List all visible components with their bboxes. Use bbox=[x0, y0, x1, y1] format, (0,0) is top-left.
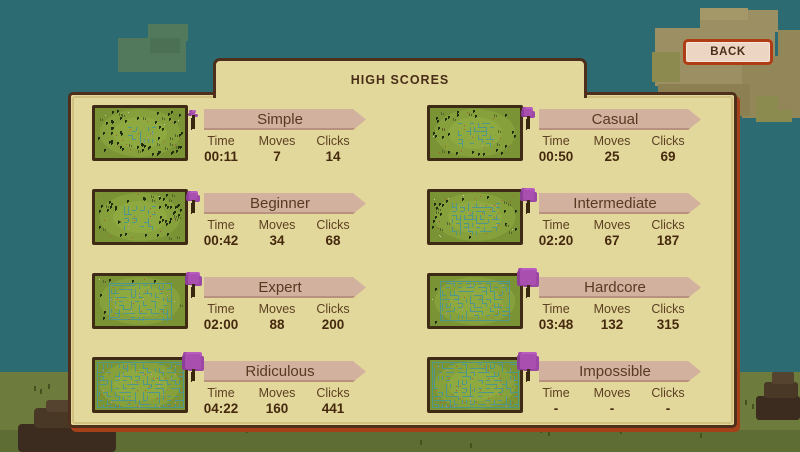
stat-value-time: - bbox=[554, 402, 559, 416]
stat-value-time: 02:00 bbox=[204, 318, 239, 332]
high-scores-screen: BACK Simple Time00:11 Moves7 Clicks14 bbox=[0, 0, 800, 452]
maze-thumbnail bbox=[427, 357, 523, 413]
difficulty-name: Impossible bbox=[579, 364, 661, 379]
maze-thumbnail bbox=[92, 189, 188, 245]
rock bbox=[756, 396, 800, 420]
stat-value-clicks: 441 bbox=[322, 402, 345, 416]
stat-value-moves: 34 bbox=[269, 234, 284, 248]
stat-header-time: Time bbox=[207, 134, 234, 148]
stat-value-moves: 25 bbox=[604, 150, 619, 164]
rock bbox=[18, 424, 116, 452]
cloud-tan bbox=[778, 30, 800, 110]
difficulty-name: Beginner bbox=[250, 196, 320, 211]
maze-thumbnail bbox=[92, 105, 188, 161]
difficulty-name: Intermediate bbox=[573, 196, 666, 211]
plant-icon bbox=[183, 354, 203, 381]
stats-row: Time02:20 Moves67 Clicks187 bbox=[533, 218, 691, 248]
grass-tufts bbox=[0, 0, 2, 5]
score-entry-simple: Simple Time00:11 Moves7 Clicks14 bbox=[92, 105, 427, 189]
stat-value-moves: 7 bbox=[273, 150, 281, 164]
stat-header-clicks: Clicks bbox=[316, 134, 349, 148]
stat-header-clicks: Clicks bbox=[651, 134, 684, 148]
stat-value-clicks: - bbox=[666, 402, 671, 416]
score-entry-expert: Expert Time02:00 Moves88 Clicks200 bbox=[92, 273, 427, 357]
stat-value-time: 04:22 bbox=[204, 402, 239, 416]
stat-value-clicks: 14 bbox=[325, 150, 340, 164]
score-entry-intermediate: Intermediate Time02:20 Moves67 Clicks187 bbox=[427, 189, 734, 273]
high-scores-panel: Simple Time00:11 Moves7 Clicks14 Casual … bbox=[68, 92, 737, 428]
cloud-tan bbox=[700, 8, 748, 20]
stat-header-clicks: Clicks bbox=[651, 302, 684, 316]
score-entry-impossible: Impossible Time- Moves- Clicks- bbox=[427, 357, 734, 428]
stat-header-moves: Moves bbox=[259, 134, 296, 148]
stat-value-clicks: 200 bbox=[322, 318, 345, 332]
high-scores-title-tab: HIGH SCORES bbox=[213, 58, 587, 98]
stat-header-moves: Moves bbox=[259, 218, 296, 232]
difficulty-banner: Impossible bbox=[539, 361, 701, 382]
page-title: HIGH SCORES bbox=[351, 73, 450, 87]
stats-row: Time00:42 Moves34 Clicks68 bbox=[198, 218, 356, 248]
plant-icon bbox=[183, 193, 203, 213]
stat-header-time: Time bbox=[542, 302, 569, 316]
plant-icon bbox=[518, 270, 538, 297]
stat-header-clicks: Clicks bbox=[316, 218, 349, 232]
stat-header-clicks: Clicks bbox=[316, 386, 349, 400]
stat-header-time: Time bbox=[207, 218, 234, 232]
stat-header-time: Time bbox=[207, 302, 234, 316]
difficulty-name: Expert bbox=[258, 280, 311, 295]
stat-value-time: 02:20 bbox=[539, 234, 574, 248]
stat-value-moves: 160 bbox=[266, 402, 289, 416]
maze-thumbnail bbox=[92, 357, 188, 413]
score-entry-beginner: Beginner Time00:42 Moves34 Clicks68 bbox=[92, 189, 427, 273]
difficulty-name: Hardcore bbox=[584, 280, 656, 295]
difficulty-banner: Simple bbox=[204, 109, 366, 130]
cloud-tan bbox=[652, 52, 680, 82]
score-entry-hardcore: Hardcore Time03:48 Moves132 Clicks315 bbox=[427, 273, 734, 357]
rock bbox=[772, 372, 794, 384]
difficulty-name: Casual bbox=[592, 112, 649, 127]
stat-header-time: Time bbox=[542, 134, 569, 148]
stat-header-time: Time bbox=[542, 386, 569, 400]
stat-header-clicks: Clicks bbox=[651, 218, 684, 232]
stat-header-moves: Moves bbox=[594, 302, 631, 316]
stat-value-time: 00:11 bbox=[204, 150, 238, 164]
stat-header-moves: Moves bbox=[259, 386, 296, 400]
back-button[interactable]: BACK bbox=[683, 39, 773, 65]
stats-row: Time- Moves- Clicks- bbox=[533, 386, 691, 416]
maze-thumbnail bbox=[427, 273, 523, 329]
stat-header-clicks: Clicks bbox=[651, 386, 684, 400]
stat-value-time: 03:48 bbox=[539, 318, 574, 332]
stat-value-moves: - bbox=[610, 402, 615, 416]
difficulty-banner: Hardcore bbox=[539, 277, 701, 298]
stats-row: Time00:11 Moves7 Clicks14 bbox=[198, 134, 356, 164]
stat-header-moves: Moves bbox=[594, 134, 631, 148]
difficulty-banner: Casual bbox=[539, 109, 701, 130]
difficulty-banner: Ridiculous bbox=[204, 361, 366, 382]
difficulty-banner: Expert bbox=[204, 277, 366, 298]
plant-icon bbox=[518, 109, 538, 129]
stat-header-moves: Moves bbox=[259, 302, 296, 316]
stat-header-clicks: Clicks bbox=[316, 302, 349, 316]
stat-header-time: Time bbox=[542, 218, 569, 232]
plant-icon bbox=[518, 354, 538, 381]
stat-value-moves: 88 bbox=[269, 318, 284, 332]
maze-thumbnail bbox=[92, 273, 188, 329]
difficulty-name: Simple bbox=[257, 112, 313, 127]
difficulty-name: Ridiculous bbox=[245, 364, 324, 379]
score-grid: Simple Time00:11 Moves7 Clicks14 Casual … bbox=[71, 95, 734, 425]
maze-thumbnail bbox=[427, 189, 523, 245]
stats-row: Time02:00 Moves88 Clicks200 bbox=[198, 302, 356, 332]
maze-thumbnail bbox=[427, 105, 523, 161]
stat-header-moves: Moves bbox=[594, 218, 631, 232]
rock bbox=[764, 382, 798, 398]
cloud-green bbox=[150, 38, 180, 53]
stat-value-moves: 67 bbox=[604, 234, 619, 248]
grass-ground-dark bbox=[0, 430, 800, 452]
stats-row: Time00:50 Moves25 Clicks69 bbox=[533, 134, 691, 164]
plant-icon bbox=[518, 190, 538, 213]
stat-value-clicks: 68 bbox=[325, 234, 340, 248]
stat-value-clicks: 187 bbox=[657, 234, 680, 248]
plant-icon bbox=[183, 274, 203, 297]
score-entry-casual: Casual Time00:50 Moves25 Clicks69 bbox=[427, 105, 734, 189]
stat-header-time: Time bbox=[207, 386, 234, 400]
stat-header-moves: Moves bbox=[594, 386, 631, 400]
stat-value-moves: 132 bbox=[601, 318, 624, 332]
stats-row: Time04:22 Moves160 Clicks441 bbox=[198, 386, 356, 416]
stat-value-clicks: 315 bbox=[657, 318, 680, 332]
plant-icon bbox=[183, 112, 203, 129]
stat-value-clicks: 69 bbox=[660, 150, 675, 164]
score-entry-ridiculous: Ridiculous Time04:22 Moves160 Clicks441 bbox=[92, 357, 427, 428]
difficulty-banner: Intermediate bbox=[539, 193, 701, 214]
difficulty-banner: Beginner bbox=[204, 193, 366, 214]
stat-value-time: 00:50 bbox=[539, 150, 574, 164]
stats-row: Time03:48 Moves132 Clicks315 bbox=[533, 302, 691, 332]
stat-value-time: 00:42 bbox=[204, 234, 239, 248]
